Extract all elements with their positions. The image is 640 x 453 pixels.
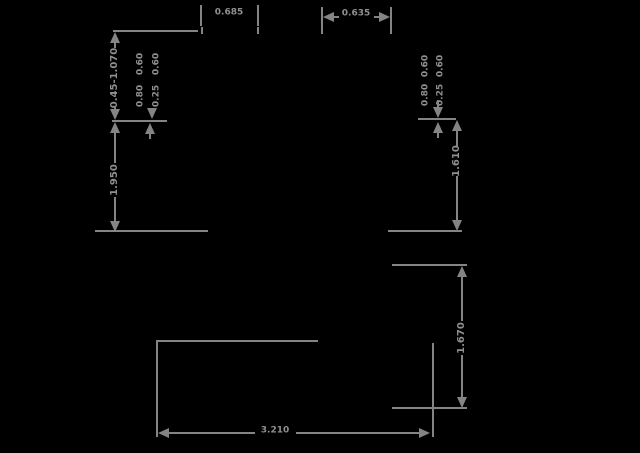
dim-line bbox=[296, 432, 428, 434]
dim-arrow-right-icon bbox=[379, 12, 390, 22]
dim-tick-left bbox=[200, 5, 202, 26]
dim-arrow-down-icon bbox=[452, 220, 462, 231]
extension-stub bbox=[390, 27, 392, 34]
extension-line-right-lower-bottom bbox=[392, 407, 467, 409]
extension-line-top-left bbox=[113, 30, 198, 32]
dim-arrow-right-icon bbox=[419, 428, 430, 438]
dim-line bbox=[456, 176, 458, 221]
dim-right-upper-label: 1.610 bbox=[452, 145, 462, 177]
leader-arrow-down-icon bbox=[147, 108, 157, 119]
small-dim-label: 0.60 bbox=[153, 53, 162, 75]
dim-left-upper-label: 0.45-1.070 bbox=[110, 48, 120, 108]
small-dim-label: 0.25 bbox=[153, 85, 162, 107]
dim-top-left-width-label: 0.685 bbox=[215, 9, 243, 18]
dim-arrow-down-icon bbox=[110, 109, 120, 120]
dim-line bbox=[461, 277, 463, 321]
dim-bottom-width-label: 3.210 bbox=[261, 427, 289, 436]
dim-arrow-down-icon bbox=[110, 221, 120, 232]
extension-line-right-lower-top bbox=[392, 264, 467, 266]
dim-line bbox=[374, 16, 379, 18]
extension-line-mid-left bbox=[112, 120, 167, 122]
small-dim-label: 0.80 bbox=[137, 85, 146, 107]
extension-stub bbox=[321, 27, 323, 34]
extension-stub bbox=[201, 27, 203, 34]
leader-arrow-up-icon bbox=[145, 123, 155, 134]
extension-line-bottom-width-left bbox=[156, 341, 158, 437]
extension-stub bbox=[257, 27, 259, 34]
leader-line bbox=[437, 133, 439, 138]
pad-edge-line bbox=[156, 340, 318, 342]
dim-arrow-up-icon bbox=[457, 266, 467, 277]
leader-arrow-down-icon bbox=[433, 107, 443, 118]
dim-line bbox=[456, 131, 458, 146]
dim-line bbox=[114, 133, 116, 163]
small-dim-label: 0.80 bbox=[422, 84, 431, 106]
dim-line bbox=[334, 16, 339, 18]
dim-arrow-down-icon bbox=[457, 397, 467, 408]
dim-arrow-up-icon bbox=[452, 120, 462, 131]
dim-right-lower-label: 1.670 bbox=[457, 322, 467, 354]
leader-line bbox=[149, 134, 151, 139]
dim-line bbox=[168, 432, 255, 434]
technical-drawing-canvas: 0.685 0.635 0.45-1.070 1.950 0.60 0.60 0… bbox=[0, 0, 640, 453]
dim-line bbox=[114, 197, 116, 221]
dim-arrow-up-icon bbox=[110, 122, 120, 133]
dim-arrow-up-icon bbox=[110, 32, 120, 43]
small-dim-label: 0.60 bbox=[137, 53, 146, 75]
dim-line bbox=[461, 355, 463, 397]
extension-line-mid-right bbox=[418, 118, 456, 120]
leader-line bbox=[437, 100, 439, 107]
dim-tick-right bbox=[390, 7, 392, 27]
dim-left-lower-label: 1.950 bbox=[110, 164, 120, 196]
extension-line-bottom-width-right bbox=[432, 343, 434, 437]
dim-arrow-left-icon bbox=[323, 12, 334, 22]
dim-top-right-width-label: 0.635 bbox=[342, 10, 370, 19]
dim-tick-right bbox=[257, 5, 259, 26]
small-dim-label: 0.60 bbox=[437, 55, 446, 77]
extension-line-right-upper-bottom bbox=[388, 230, 462, 232]
small-dim-label: 0.60 bbox=[422, 55, 431, 77]
leader-arrow-up-icon bbox=[433, 122, 443, 133]
